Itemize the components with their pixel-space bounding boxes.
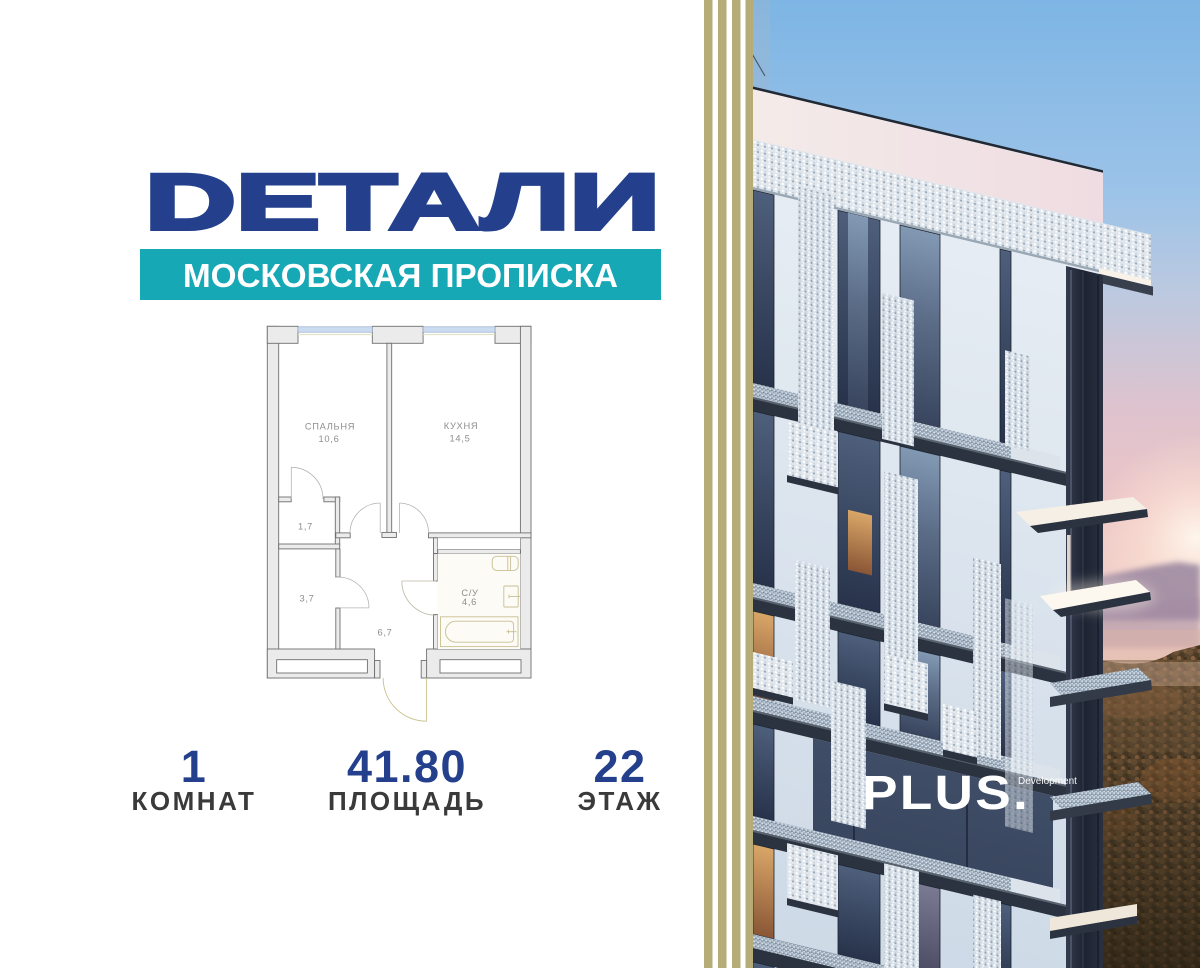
- svg-text:DЕТАЛИ: DЕТАЛИ: [145, 164, 660, 236]
- svg-text:1,7: 1,7: [298, 522, 313, 532]
- svg-text:14,5: 14,5: [450, 434, 471, 444]
- svg-text:Development: Development: [1018, 776, 1077, 787]
- svg-text:СПАЛЬНЯ: СПАЛЬНЯ: [305, 422, 355, 432]
- svg-text:МОСКОВСКАЯ ПРОПИСКА: МОСКОВСКАЯ ПРОПИСКА: [183, 257, 618, 294]
- svg-text:PLUS.: PLUS.: [862, 767, 1030, 820]
- svg-text:КУХНЯ: КУХНЯ: [444, 421, 479, 431]
- svg-text:3,7: 3,7: [299, 594, 314, 604]
- svg-text:4,6: 4,6: [462, 597, 477, 607]
- svg-text:10,6: 10,6: [319, 434, 340, 444]
- svg-text:6,7: 6,7: [377, 628, 392, 638]
